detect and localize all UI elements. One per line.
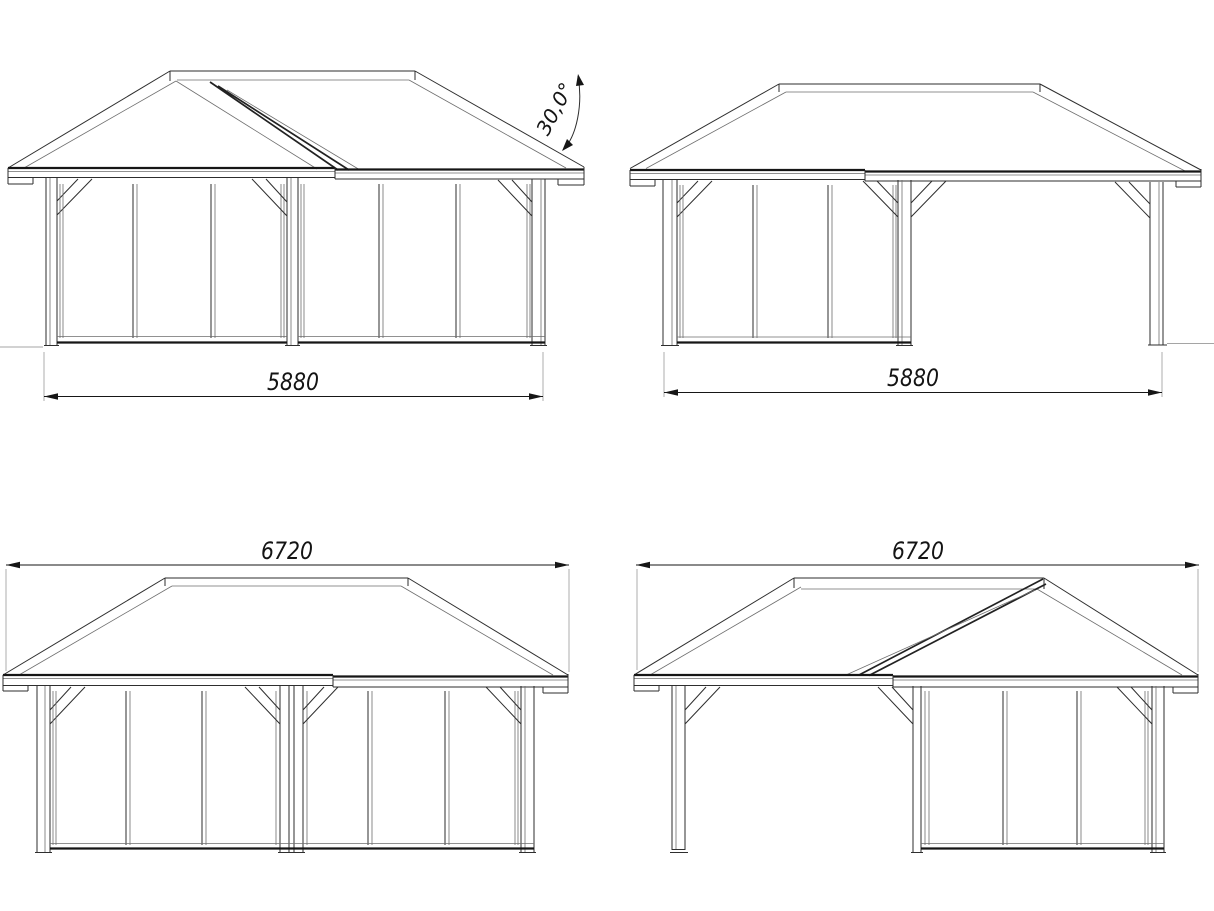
dimension-value: 6720 — [261, 537, 313, 565]
dimension-arrow-left — [44, 393, 58, 400]
panel-dividers — [753, 185, 828, 338]
corner-post-left — [663, 180, 712, 346]
roof — [634, 578, 1198, 693]
dimension-arrow-left — [636, 562, 650, 568]
center-post — [863, 180, 946, 346]
view-front-elevation-enclosed: 5880 30,0° — [0, 71, 584, 401]
corner-post-right — [1117, 686, 1164, 853]
bottom-rail — [44, 337, 547, 346]
dimension-length: 6720 — [6, 537, 569, 672]
dimension-arrow-right — [555, 562, 569, 568]
corner-post-right — [498, 179, 545, 346]
wall-panel-edges — [60, 184, 530, 338]
dimension-width: 5880 — [664, 352, 1162, 397]
bottom-rail — [911, 844, 1166, 853]
dimension-width: 5880 — [0, 347, 543, 401]
angle-arrow-bottom — [562, 139, 573, 151]
eave-beam — [634, 674, 1198, 693]
dimension-arrow-right — [1148, 389, 1162, 396]
wall-framing — [661, 180, 1214, 346]
eave-beam — [3, 674, 568, 693]
open-bay-post-right — [1115, 182, 1214, 345]
corner-post-left — [37, 686, 85, 853]
wall-framing — [35, 686, 536, 853]
roof — [3, 578, 568, 693]
wall-panel-edges — [53, 691, 518, 845]
corner-post-right — [486, 686, 534, 853]
dimension-value: 5880 — [887, 364, 939, 392]
dimension-arrow-right — [529, 393, 543, 400]
wall-panel-edges — [680, 185, 896, 338]
roof-angle-annotation: 30,0° — [531, 74, 584, 151]
roof — [8, 71, 584, 185]
wall-framing — [44, 178, 547, 346]
panel-dividers — [1003, 691, 1077, 845]
dimension-value: 5880 — [267, 368, 319, 396]
view-side-elevation-gable-open-bay: 6720 — [634, 537, 1199, 853]
eave-beam — [8, 167, 584, 185]
junction-post — [878, 686, 921, 853]
dimension-length: 6720 — [636, 537, 1199, 672]
center-post-pair — [245, 686, 338, 853]
gable-valley — [846, 579, 1046, 676]
roof — [630, 84, 1201, 187]
bottom-rail — [35, 844, 536, 853]
roof-angle-value: 30,0° — [531, 78, 578, 139]
view-front-elevation-open-bay: 5880 — [630, 84, 1214, 397]
dimension-arrow-left — [664, 389, 678, 396]
elevation-drawing-svg: 5880 30,0° — [0, 0, 1214, 911]
panel-dividers — [133, 184, 456, 338]
wall-panel-edges — [925, 691, 1148, 845]
bottom-rail — [661, 337, 913, 346]
drawing-sheet: 5880 30,0° — [0, 0, 1214, 911]
dimension-arrow-right — [1185, 562, 1199, 568]
gable-valley — [176, 81, 360, 170]
center-post — [252, 178, 298, 346]
angle-arrow-top — [576, 74, 584, 86]
view-side-elevation-enclosed: 6720 — [3, 537, 569, 853]
dimension-arrow-left — [6, 562, 20, 568]
open-bay-post-left — [670, 686, 720, 853]
eave-beam — [630, 169, 1201, 187]
corner-post-left — [46, 178, 92, 346]
panel-dividers — [126, 691, 445, 845]
wall-framing — [670, 686, 1166, 853]
dimension-value: 6720 — [892, 537, 944, 565]
